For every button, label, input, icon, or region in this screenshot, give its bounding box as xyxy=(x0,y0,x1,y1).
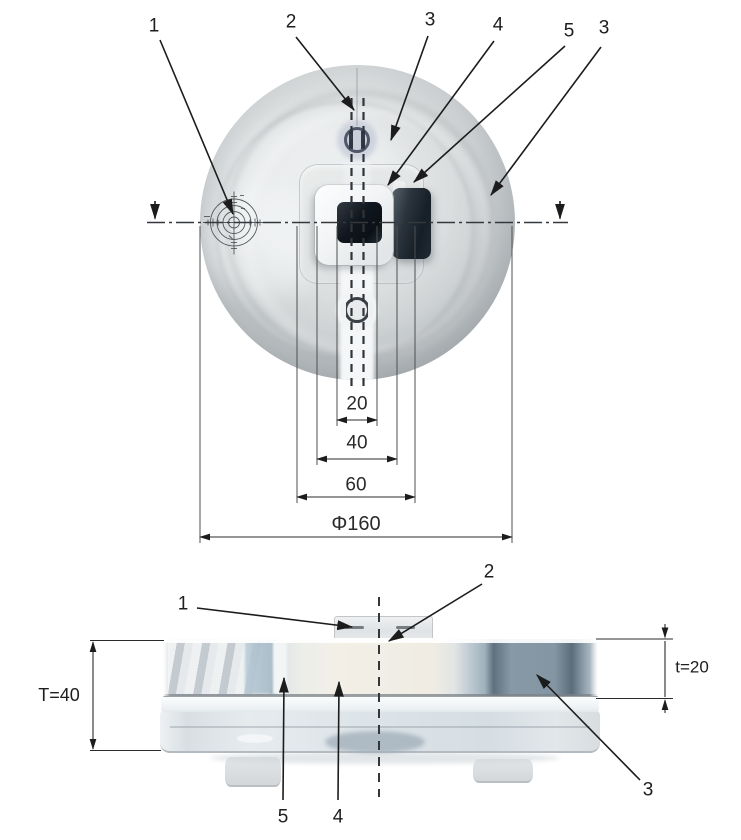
dimension-T40-label: T=40 xyxy=(38,686,80,704)
top-callout-1: 1 xyxy=(149,17,160,36)
dimension-diameter-label: Φ160 xyxy=(331,514,380,534)
base-inner-highlight xyxy=(237,734,273,743)
disc-right-edge-highlight xyxy=(590,639,598,696)
top-tab-slot xyxy=(396,626,415,629)
side-callout-1: 1 xyxy=(178,595,189,614)
top-hole-slot xyxy=(361,131,365,149)
layer-separation-line xyxy=(163,694,598,697)
side-callout-5: 5 xyxy=(278,808,289,827)
top-view-photo xyxy=(200,65,515,380)
base-bottom-shadow xyxy=(210,752,560,764)
top-tab-slot xyxy=(345,626,364,629)
top-callout-2: 2 xyxy=(286,13,297,32)
upper-layer-highlight xyxy=(273,641,287,694)
top-callout-5: 5 xyxy=(564,22,575,41)
top-hole-slot xyxy=(349,131,353,149)
top-thickness-dimension xyxy=(596,624,673,713)
disc-left-edge-highlight xyxy=(163,639,170,696)
square-aperture xyxy=(337,202,382,243)
bottom-hole-ring xyxy=(344,297,370,323)
dimension-60-label: 60 xyxy=(345,476,366,495)
upper-layer-glass-tint xyxy=(245,641,275,694)
side-callout-4: 4 xyxy=(333,808,344,827)
dark-glass-block xyxy=(392,188,431,259)
bottom-hole-notch xyxy=(368,303,373,317)
dimension-40-label: 40 xyxy=(346,434,367,453)
base-inner-shadow xyxy=(325,731,425,753)
dimension-t20-label: t=20 xyxy=(675,659,709,676)
top-callout-4: 4 xyxy=(493,16,504,35)
side-callout-2: 2 xyxy=(484,563,495,582)
top-callout-3b: 3 xyxy=(599,19,610,38)
top-callout-3a: 3 xyxy=(425,11,436,30)
middle-bright-band xyxy=(161,697,599,712)
total-thickness-dimension xyxy=(90,641,164,751)
side-callout-3: 3 xyxy=(643,781,654,800)
upper-layer-top-rim xyxy=(163,638,598,643)
base-inner-line xyxy=(170,726,590,728)
dimension-20-label: 20 xyxy=(346,395,367,414)
top-hole-ring xyxy=(344,127,370,153)
bottom-hole-notch xyxy=(341,303,346,317)
technical-drawing-canvas: 1 2 3 4 5 3 20 40 60 Φ160 1 2 5 4 3 T=40… xyxy=(0,0,741,840)
